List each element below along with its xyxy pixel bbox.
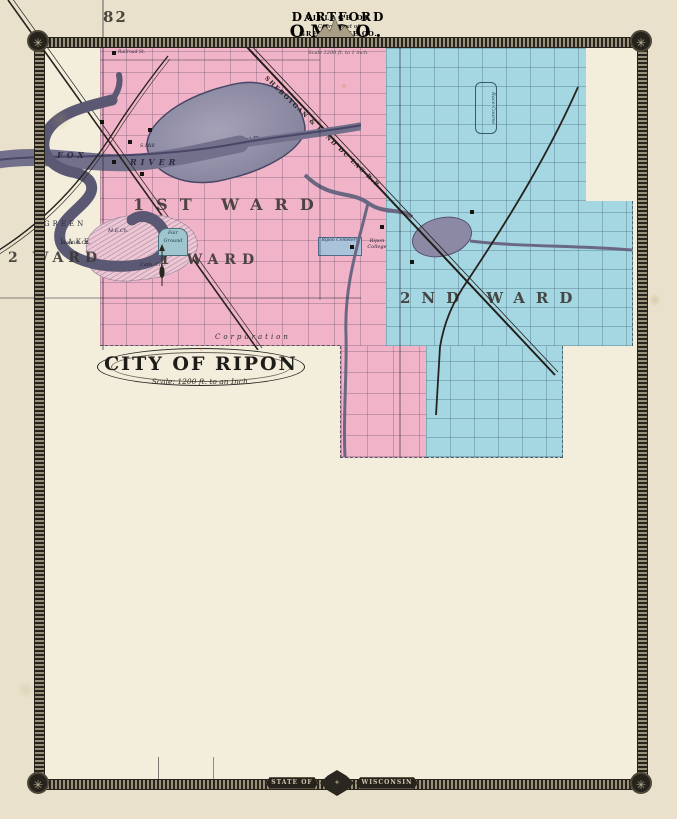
road-line	[158, 757, 159, 779]
omro-scale: Scale 1200 ft. to 1 inch.	[290, 50, 388, 56]
corner-rosette-icon: ✳	[630, 30, 652, 52]
ripon-title-cartouche: CITY OF RIPON Scale: 1200 ft. to an Inch…	[95, 347, 307, 396]
building-block	[112, 160, 116, 164]
crest-ornament	[313, 16, 357, 38]
border-right	[637, 37, 648, 788]
corner-rosette-icon: ✳	[630, 772, 652, 794]
building-block	[100, 120, 104, 124]
ripon-map-title: CITY OF RIPON	[95, 353, 307, 375]
building-block	[140, 172, 144, 176]
road-line	[213, 757, 214, 779]
corner-rosette-icon: ✳	[27, 30, 49, 52]
atlas-page: MILL POND SHEBOYGAN & FOND DU LAC R.R. 1…	[0, 0, 677, 819]
page-number: 82	[103, 8, 128, 26]
banner-state-of: STATE OF	[266, 777, 318, 789]
building-block	[128, 140, 132, 144]
building-block	[148, 128, 152, 132]
ripon-map-scale: Scale: 1200 ft. to an Inch.	[95, 377, 307, 386]
corner-rosette-icon: ✳	[27, 772, 49, 794]
banner-wisconsin: WISCONSIN	[356, 777, 418, 789]
border-top	[33, 37, 646, 48]
border-left	[34, 37, 45, 788]
